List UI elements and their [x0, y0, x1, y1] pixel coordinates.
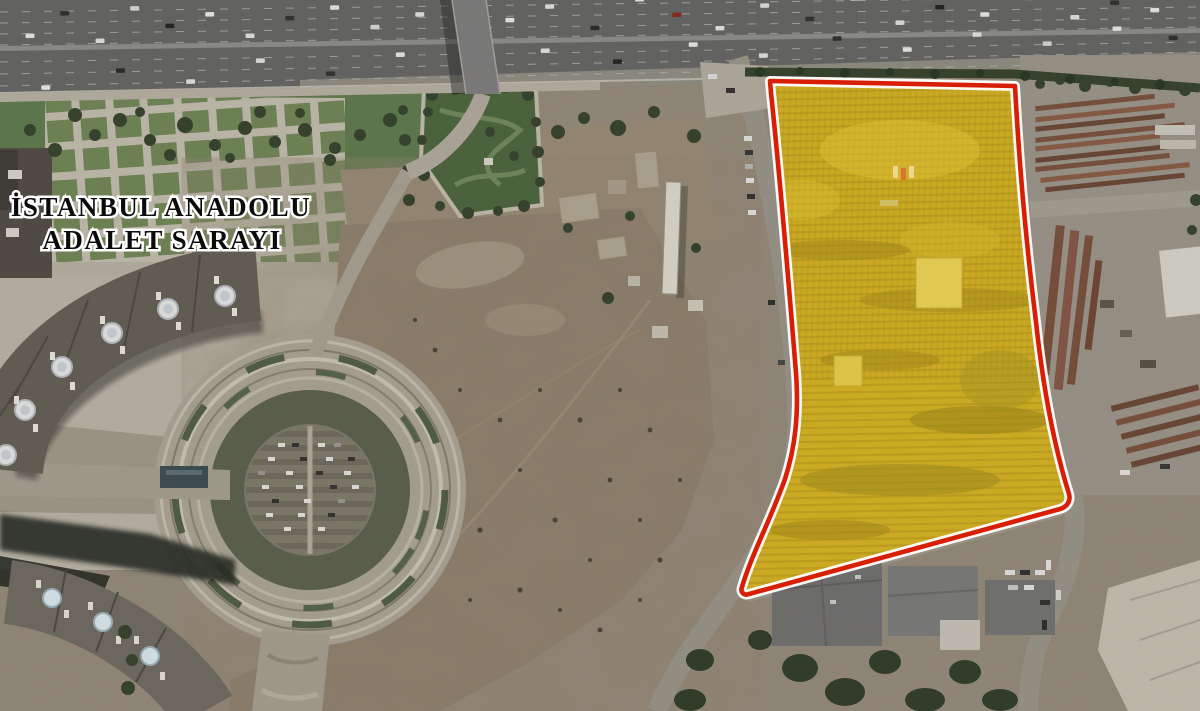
location-label-line1: İSTANBUL ANADOLU: [11, 192, 311, 222]
satellite-map-view: İSTANBUL ANADOLU ADALET SARAYI: [0, 0, 1200, 711]
satellite-canvas: İSTANBUL ANADOLU ADALET SARAYI: [0, 0, 1200, 711]
location-label-line2: ADALET SARAYI: [42, 225, 281, 255]
